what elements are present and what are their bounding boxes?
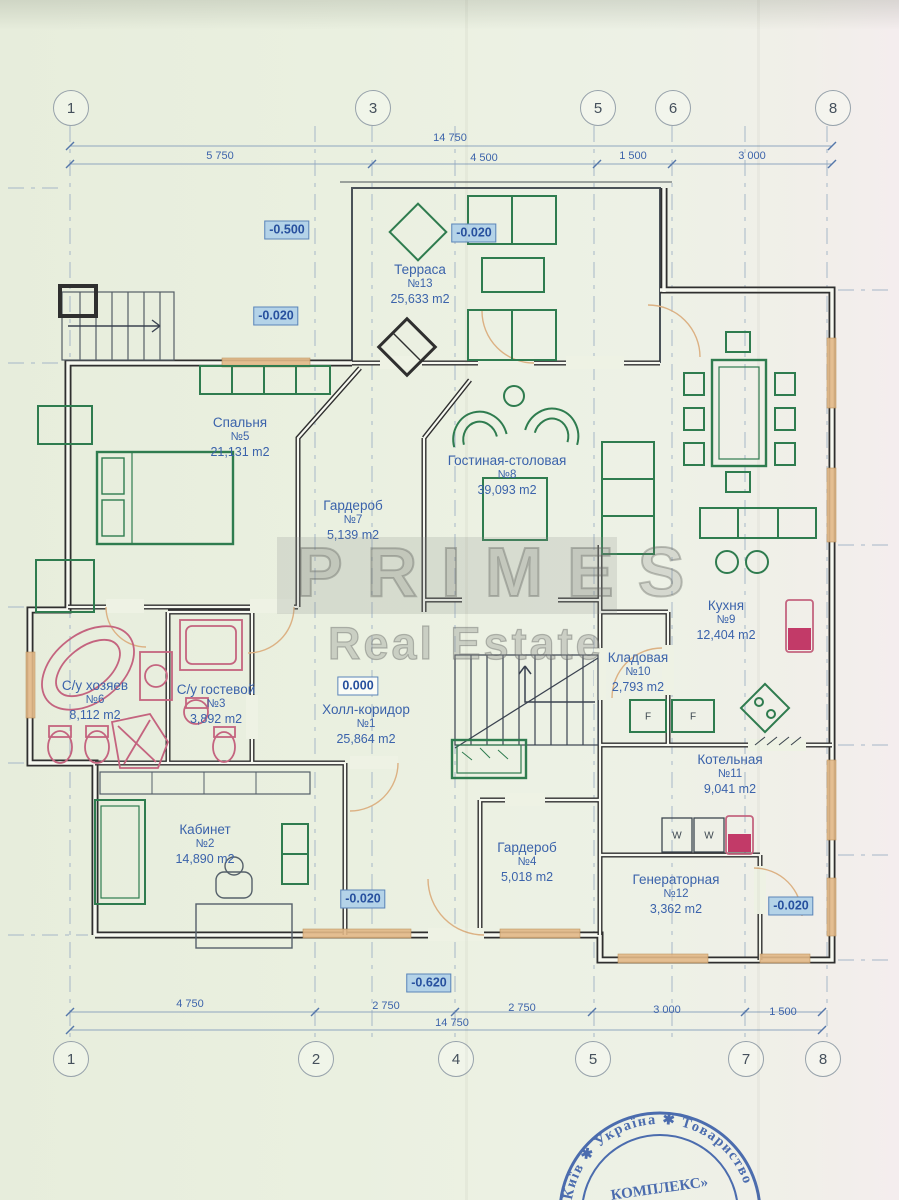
shelf-label: F [690,712,696,723]
company-stamp: м.Київ ✱ Україна ✱ Товариство КОМПЛЕКС» [540,1085,820,1200]
dim-top-seg4: 3 000 [738,150,766,162]
dim-bottom-seg5: 1 500 [769,1006,797,1018]
room-label-storage: Кладовая №10 2,793 m2 [608,650,668,695]
elevation-mark: -0.500 [264,221,309,240]
dim-bottom-seg1: 4 750 [176,998,204,1010]
stamp-center-text: КОМПЛЕКС» [610,1174,709,1200]
entry-steps [60,286,174,360]
room-label-terrace: Терраса №13 25,633 m2 [390,262,449,307]
dim-top-overall: 14 750 [433,132,467,144]
room-label-generator: Генераторная №12 3,362 m2 [633,872,720,917]
room-label-hall: Холл-коридор №1 25,864 m2 [322,702,410,747]
room-label-bedroom: Спальня №5 21,131 m2 [210,415,269,460]
floor-plan-sheet: 1 3 5 6 8 14 750 5 750 4 500 1 500 3 000… [0,0,899,1200]
room-label-boiler: Котельная №11 9,041 m2 [697,752,762,797]
axis-top-1: 1 [53,90,89,126]
watermark-brand: PRIMES [296,532,708,612]
elevation-mark: -0.020 [253,307,298,326]
axis-bottom-8: 8 [805,1041,841,1077]
axis-bottom-7: 7 [728,1041,764,1077]
dim-top-seg3: 1 500 [619,150,647,162]
room-label-office: Кабинет №2 14,890 m2 [175,822,234,867]
washer-label: W [672,831,681,842]
axis-top-6: 6 [655,90,691,126]
room-label-wardrobe4: Гардероб №4 5,018 m2 [497,840,556,885]
shelf-label: F [645,712,651,723]
room-label-guest-bath: С/у гостевой №3 3,892 m2 [177,682,256,727]
elevation-mark: -0.620 [406,974,451,993]
axis-bottom-2: 2 [298,1041,334,1077]
washer-label: W [704,831,713,842]
axis-top-5: 5 [580,90,616,126]
axis-bottom-1: 1 [53,1041,89,1077]
dim-bottom-seg4: 3 000 [653,1004,681,1016]
axis-top-3: 3 [355,90,391,126]
elevation-mark: -0.020 [768,897,813,916]
axis-bottom-4: 4 [438,1041,474,1077]
elevation-mark: -0.020 [451,224,496,243]
axis-top-8: 8 [815,90,851,126]
room-label-master-bath: С/у хозяев №6 8,112 m2 [62,678,128,723]
dim-bottom-overall: 14 750 [435,1017,469,1029]
axis-bottom-5: 5 [575,1041,611,1077]
elevation-mark-zero: 0.000 [337,677,378,696]
dim-bottom-seg3: 2 750 [508,1002,536,1014]
watermark-subtitle: Real Estate [328,618,604,670]
dim-bottom-seg2: 2 750 [372,1000,400,1012]
dim-top-seg2: 4 500 [470,152,498,164]
dim-top-seg1: 5 750 [206,150,234,162]
room-label-living: Гостиная-столовая №8 39,093 m2 [448,453,567,498]
elevation-mark: -0.020 [340,890,385,909]
